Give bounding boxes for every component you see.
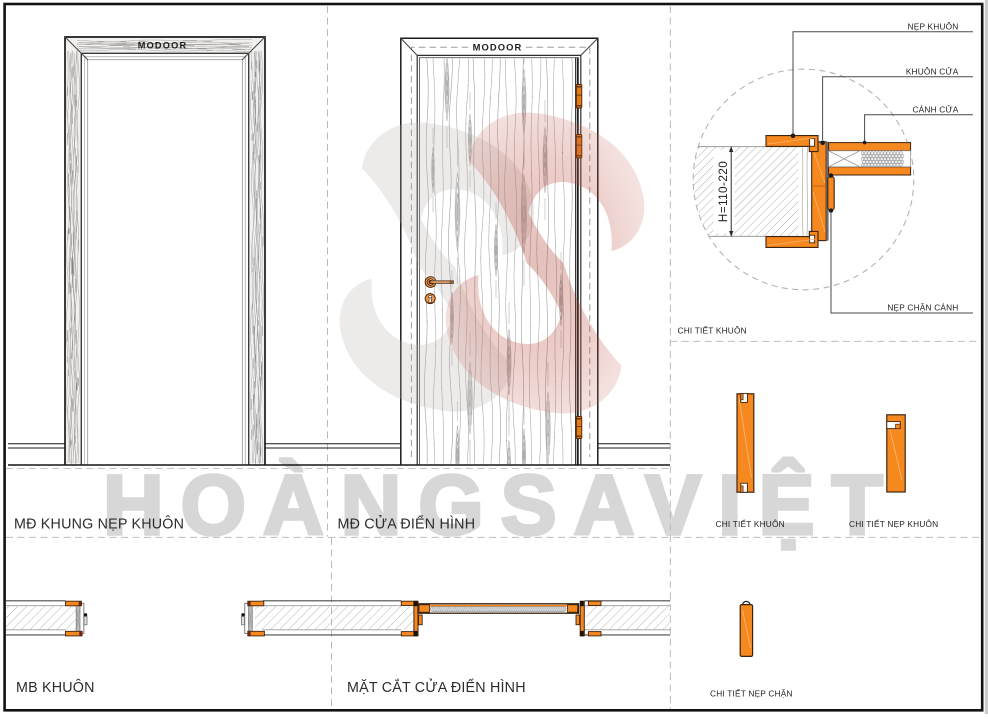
svg-text:CHI TIẾT KHUÔN: CHI TIẾT KHUÔN [678, 326, 747, 336]
svg-text:CHI TIẾT NẸP KHUÔN: CHI TIẾT NẸP KHUÔN [849, 519, 938, 529]
svg-text:CHI TIẾT KHUÔN: CHI TIẾT KHUÔN [716, 519, 785, 529]
svg-text:H=110-220: H=110-220 [716, 161, 730, 222]
svg-text:MODOOR: MODOOR [473, 42, 523, 53]
svg-text:MB KHUÔN: MB KHUÔN [16, 679, 95, 696]
svg-text:MODOOR: MODOOR [138, 40, 188, 50]
svg-text:HOÀNGSAVIỆT: HOÀNGSAVIỆT [103, 458, 900, 552]
svg-text:CHI TIẾT NẸP CHẶN: CHI TIẾT NẸP CHẶN [710, 688, 793, 698]
svg-text:MĐ KHUNG NẸP KHUÔN: MĐ KHUNG NẸP KHUÔN [14, 516, 184, 533]
svg-text:NẸP KHUÔN: NẸP KHUÔN [908, 21, 959, 31]
svg-text:MẶT CẮT CỬA ĐIỂN HÌNH: MẶT CẮT CỬA ĐIỂN HÌNH [347, 678, 526, 696]
svg-text:KHUÔN CỬA: KHUÔN CỬA [906, 65, 959, 76]
svg-text:CÁNH CỬA: CÁNH CỬA [912, 103, 958, 114]
svg-text:MĐ CỬA ĐIỂN HÌNH: MĐ CỬA ĐIỂN HÌNH [338, 515, 476, 533]
svg-text:NẸP CHẶN CÁNH: NẸP CHẶN CÁNH [887, 303, 958, 313]
